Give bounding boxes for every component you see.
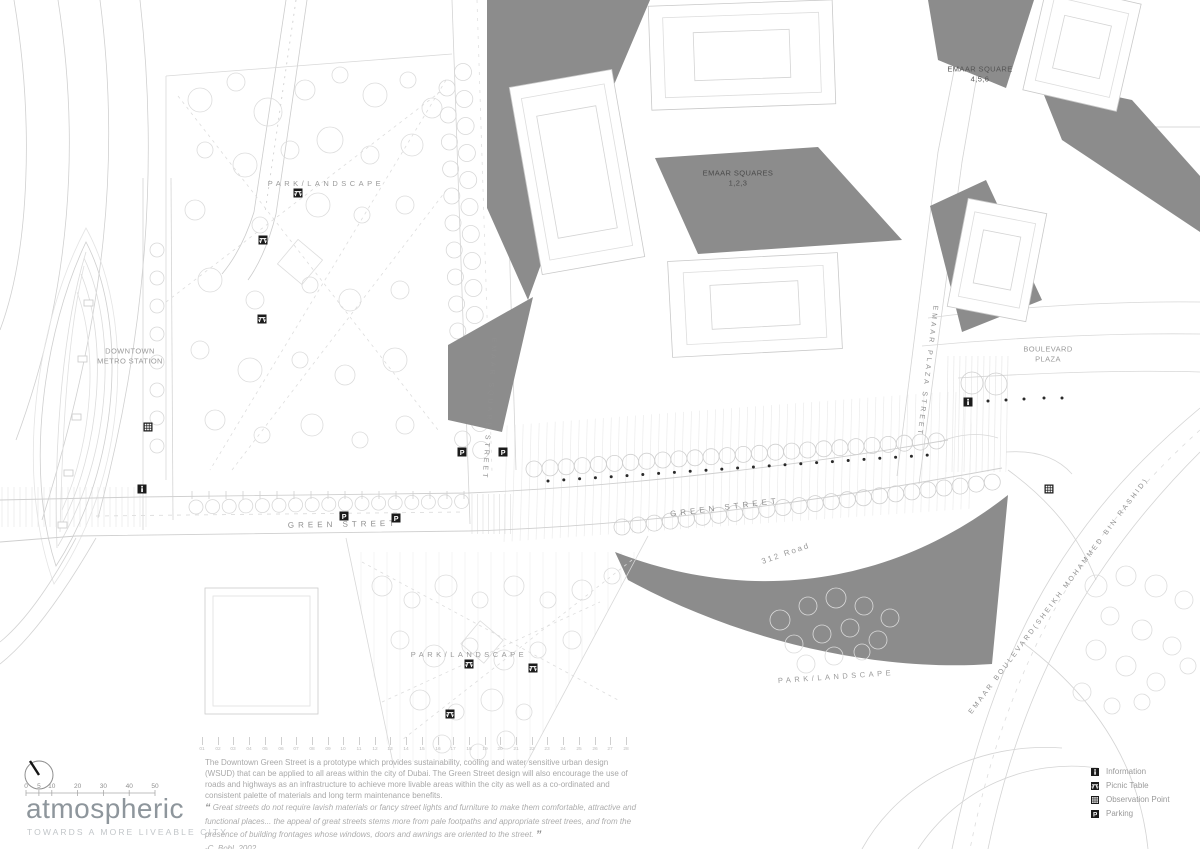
picnic-marker-icon (529, 664, 538, 673)
ruler-number: 23 (542, 747, 553, 752)
ruler-number: 27 (605, 747, 616, 752)
ruler-number: 01 (196, 747, 207, 752)
picnic-marker-icon (259, 236, 268, 245)
ruler-number: 25 (573, 747, 584, 752)
legend-item-observation-point: Observation Point (1091, 795, 1170, 804)
project-description: The Downtown Green Street is a prototype… (205, 757, 633, 801)
ruler-number: 04 (243, 747, 254, 752)
ruler-number: 06 (275, 747, 286, 752)
observation-point-icon (1091, 796, 1099, 804)
picnic-marker-icon (446, 710, 455, 719)
ruler-number: 15 (416, 747, 427, 752)
ruler-number: 07 (291, 747, 302, 752)
ruler-number: 11 (353, 747, 364, 752)
ruler-number: 12 (369, 747, 380, 752)
ruler-number: 02 (212, 747, 223, 752)
ruler-tick (516, 737, 517, 745)
ruler-tick (485, 737, 486, 745)
plan-markers: PPPP (0, 0, 1200, 849)
legend: InformationPicnic TableObservation Point… (1091, 767, 1170, 823)
parking-marker-icon: P (340, 512, 349, 521)
grid-ruler: 0102030405060708091011121314151617181920… (198, 737, 634, 754)
ruler-number: 26 (589, 747, 600, 752)
ruler-number: 24 (557, 747, 568, 752)
ruler-tick (375, 737, 376, 745)
ruler-tick (390, 737, 391, 745)
legend-label: Picnic Table (1106, 781, 1149, 790)
site-plan-sheet: 051020304050 PARK/LANDSCAPEDOWNTOWNMETRO… (0, 0, 1200, 849)
ruler-number: 22 (526, 747, 537, 752)
legend-item-picnic-table: Picnic Table (1091, 781, 1170, 790)
ruler-tick (265, 737, 266, 745)
picnic-marker-icon (465, 660, 474, 669)
ruler-tick (610, 737, 611, 745)
ruler-tick (296, 737, 297, 745)
parking-marker-icon: P (392, 514, 401, 523)
ruler-tick (626, 737, 627, 745)
ruler-number: 10 (338, 747, 349, 752)
svg-text:P: P (460, 448, 465, 457)
logo-tagline: TOWARDS A MORE LIVEABLE CITY (27, 827, 228, 837)
ruler-tick (453, 737, 454, 745)
quote-open-mark: “ (205, 802, 211, 814)
quote-close-mark: ” (536, 829, 542, 841)
ruler-number: 18 (463, 747, 474, 752)
ruler-tick (281, 737, 282, 745)
legend-item-information: Information (1091, 767, 1170, 776)
observation-marker-icon (144, 423, 153, 432)
svg-text:P: P (394, 514, 399, 523)
ruler-number: 05 (259, 747, 270, 752)
legend-label: Information (1106, 767, 1146, 776)
ruler-tick (406, 737, 407, 745)
ruler-number: 03 (228, 747, 239, 752)
information-marker-icon (138, 485, 147, 494)
ruler-tick (312, 737, 313, 745)
svg-text:P: P (342, 512, 347, 521)
legend-item-parking: PParking (1091, 809, 1170, 818)
ruler-tick (328, 737, 329, 745)
ruler-tick (579, 737, 580, 745)
svg-text:P: P (501, 448, 506, 457)
picnic-marker-icon (258, 315, 267, 324)
parking-marker-icon: P (458, 448, 467, 457)
picnic-marker-icon (294, 189, 303, 198)
ruler-tick (532, 737, 533, 745)
ruler-number: 28 (620, 747, 631, 752)
ruler-number: 19 (479, 747, 490, 752)
ruler-tick (218, 737, 219, 745)
ruler-tick (500, 737, 501, 745)
svg-text:P: P (1093, 811, 1098, 818)
ruler-tick (438, 737, 439, 745)
ruler-tick (595, 737, 596, 745)
ruler-number: 08 (306, 747, 317, 752)
quote-text: Great streets do not require lavish mate… (205, 803, 636, 839)
parking-marker-icon: P (499, 448, 508, 457)
ruler-tick (233, 737, 234, 745)
ruler-tick (563, 737, 564, 745)
ruler-tick (249, 737, 250, 745)
ruler-tick (469, 737, 470, 745)
ruler-number: 13 (385, 747, 396, 752)
legend-label: Observation Point (1106, 795, 1170, 804)
ruler-number: 20 (495, 747, 506, 752)
ruler-number: 16 (432, 747, 443, 752)
ruler-tick (202, 737, 203, 745)
information-marker-icon (964, 398, 973, 407)
quote-block: “ Great streets do not require lavish ma… (205, 801, 643, 849)
parking-icon: P (1091, 810, 1099, 818)
quote-attribution: -C. Bohl, 2002 (205, 843, 643, 849)
ruler-number: 09 (322, 747, 333, 752)
ruler-number: 21 (510, 747, 521, 752)
ruler-tick (343, 737, 344, 745)
ruler-number: 14 (400, 747, 411, 752)
ruler-number: 17 (448, 747, 459, 752)
information-icon (1091, 768, 1099, 776)
logo-wordmark: atmospheric (26, 795, 184, 823)
ruler-tick (422, 737, 423, 745)
legend-label: Parking (1106, 809, 1133, 818)
ruler-tick (359, 737, 360, 745)
picnic-table-icon (1091, 782, 1099, 790)
observation-marker-icon (1045, 485, 1054, 494)
ruler-tick (547, 737, 548, 745)
